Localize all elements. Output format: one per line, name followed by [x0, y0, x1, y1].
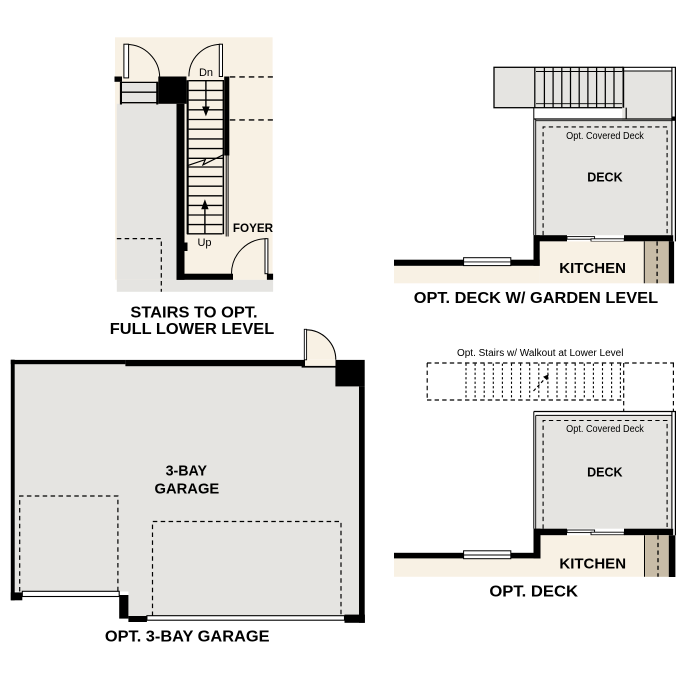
svg-text:Opt. Covered Deck: Opt. Covered Deck [566, 424, 645, 435]
svg-text:GARAGE: GARAGE [155, 481, 220, 498]
svg-text:OPT. DECK W/ GARDEN LEVEL: OPT. DECK W/ GARDEN LEVEL [414, 290, 659, 307]
svg-text:STAIRS TO OPT.: STAIRS TO OPT. [130, 305, 257, 322]
svg-text:3-BAY: 3-BAY [166, 462, 207, 479]
svg-text:Up: Up [197, 237, 211, 249]
svg-text:FOYER: FOYER [233, 221, 274, 235]
svg-text:OPT. 3-BAY GARAGE: OPT. 3-BAY GARAGE [105, 629, 270, 646]
svg-text:Opt. Stairs w/ Walkout at Lowe: Opt. Stairs w/ Walkout at Lower Level [457, 348, 624, 359]
svg-text:OPT. DECK: OPT. DECK [489, 584, 578, 601]
svg-text:FULL LOWER LEVEL: FULL LOWER LEVEL [110, 321, 275, 338]
svg-text:KITCHEN: KITCHEN [559, 555, 626, 572]
svg-text:DECK: DECK [587, 465, 622, 479]
svg-text:DECK: DECK [587, 170, 622, 184]
svg-text:Opt. Covered Deck: Opt. Covered Deck [566, 131, 645, 142]
svg-text:KITCHEN: KITCHEN [559, 260, 626, 277]
svg-text:Dn: Dn [199, 67, 213, 79]
